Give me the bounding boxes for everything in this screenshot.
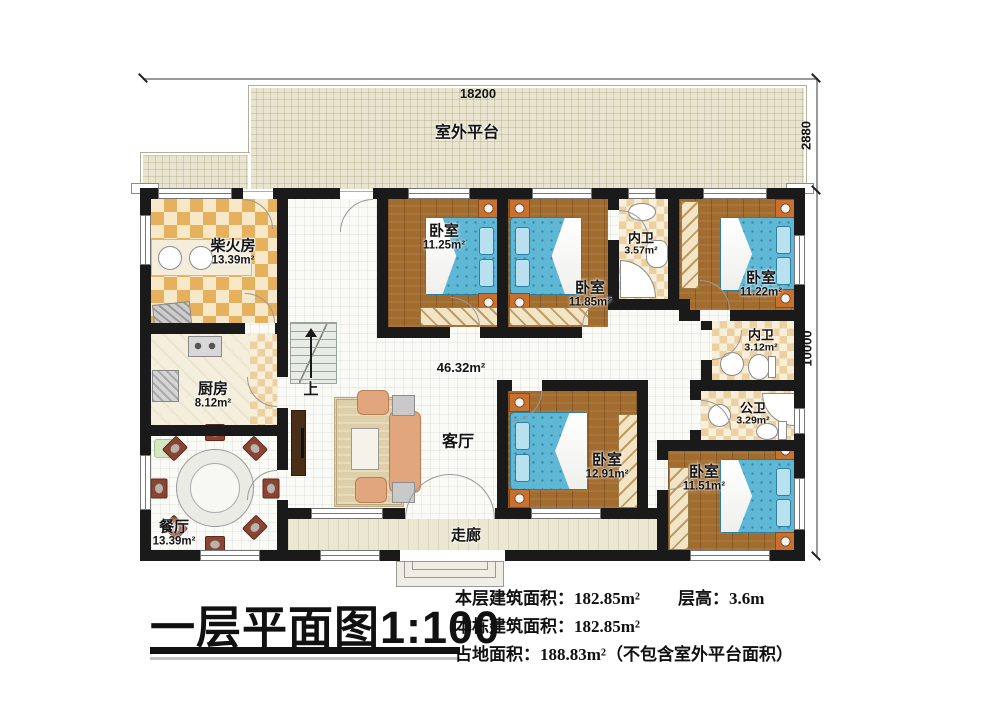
fridge — [152, 370, 179, 402]
stat-footprint-area: 占地面积：188.83m²（不包含室外平台面积） — [455, 640, 793, 665]
wall — [140, 425, 288, 436]
nightstand — [478, 199, 499, 218]
toilet-tank — [768, 356, 776, 378]
tv — [301, 428, 304, 458]
label-bedroom3: 卧室 11.22m² — [740, 271, 782, 300]
nightstand — [775, 532, 796, 551]
wall — [608, 188, 619, 210]
wall — [277, 188, 288, 377]
wall — [377, 327, 450, 338]
wall — [690, 380, 805, 391]
wall — [657, 490, 668, 561]
page-title-text: 一层平面图 — [150, 602, 380, 653]
dining-table-top — [190, 463, 240, 513]
stat-building-area: 本栋建筑面积：182.85m² — [455, 612, 640, 637]
nightstand — [509, 489, 530, 508]
side-table — [392, 395, 415, 416]
label-living-area: 46.32m² — [437, 361, 485, 375]
wall — [637, 391, 648, 519]
window — [320, 550, 380, 561]
entry-step — [412, 561, 488, 570]
window — [531, 508, 601, 519]
pillow — [479, 227, 494, 255]
wall — [690, 391, 701, 400]
label-bedroom4: 卧室 12.91m² — [586, 453, 629, 482]
blanket-fold — [555, 413, 587, 489]
label-bath2: 内卫 3.12m² — [744, 328, 777, 353]
armchair — [357, 390, 389, 415]
pillow — [776, 468, 791, 496]
label-bedroom2: 卧室 11.85m² — [569, 281, 611, 310]
pillow — [515, 422, 530, 450]
label-dining: 餐厅 13.39m² — [153, 520, 196, 549]
window — [311, 508, 383, 519]
coffee-table — [351, 428, 379, 470]
wall — [277, 408, 288, 470]
window — [532, 188, 592, 199]
dimension-line-right — [816, 78, 818, 556]
dimension-line-top — [143, 78, 816, 80]
stat-floor-area: 本层建筑面积：182.85m² — [455, 584, 640, 609]
blanket-fold — [721, 460, 752, 532]
title-underline — [150, 647, 460, 654]
stat-floor-height: 层高：3.6m — [678, 584, 764, 609]
nightstand — [509, 199, 530, 218]
pillow — [776, 499, 791, 527]
pillow — [515, 259, 530, 287]
wall — [480, 327, 582, 338]
bed — [720, 459, 796, 533]
stairs-arrow-head — [305, 328, 317, 337]
wall — [668, 188, 679, 310]
outdoor-platform — [248, 85, 807, 192]
window — [140, 455, 151, 510]
pillow — [479, 259, 494, 287]
window — [690, 550, 770, 561]
armchair — [355, 477, 387, 503]
dimension-right-upper: 2880 — [799, 108, 814, 164]
wall — [497, 380, 512, 391]
wall — [679, 310, 700, 321]
window — [158, 188, 232, 199]
label-bedroom5: 卧室 11.51m² — [683, 465, 725, 494]
window — [794, 408, 805, 434]
label-bedroom1: 卧室 11.25m² — [423, 224, 465, 253]
dimension-right-lower: 10000 — [800, 321, 815, 377]
wall — [377, 188, 388, 338]
wall — [657, 451, 668, 460]
wall — [277, 500, 288, 550]
title-underline-shadow — [150, 657, 460, 660]
wardrobe — [509, 307, 589, 326]
wall — [497, 188, 508, 338]
wall — [730, 310, 805, 321]
wall — [542, 380, 648, 391]
pillow — [776, 226, 791, 254]
wall — [657, 440, 805, 451]
label-bath1: 内卫 3.57m² — [624, 231, 657, 256]
nightstand — [775, 199, 796, 218]
label-stairs-up: 上 — [303, 382, 318, 398]
chair — [151, 479, 168, 499]
stairs-arrow — [310, 336, 312, 378]
window — [140, 215, 151, 265]
dimension-top: 18200 — [443, 86, 513, 101]
window — [200, 550, 260, 561]
sofa — [389, 411, 421, 493]
label-kitchen: 厨房 8.12m² — [195, 382, 231, 411]
label-bath3: 公卫 3.29m² — [736, 401, 769, 426]
wall — [701, 321, 712, 330]
label-firewood: 柴火房 13.39m² — [210, 239, 255, 268]
window — [628, 188, 656, 199]
toilet — [748, 354, 770, 380]
window — [794, 235, 805, 285]
pillow — [515, 227, 530, 255]
wall — [140, 323, 245, 334]
label-corridor: 走廊 — [451, 528, 481, 544]
bed — [510, 412, 588, 490]
water-jar — [158, 246, 182, 270]
wall — [497, 391, 508, 508]
pillow — [515, 454, 530, 482]
wall — [275, 323, 288, 334]
window — [703, 188, 767, 199]
wardrobe — [681, 201, 699, 289]
window — [408, 188, 470, 199]
toilet-tank — [778, 421, 787, 440]
stove — [188, 336, 222, 357]
floor-plan: 室外平台 柴火房 13.39m² 厨房 8.12m² 餐厅 13.39m² 46… — [0, 0, 1000, 706]
water-jar — [189, 246, 213, 270]
label-outdoor-platform: 室外平台 — [435, 124, 499, 141]
window — [794, 478, 805, 530]
label-living: 客厅 — [442, 433, 474, 450]
